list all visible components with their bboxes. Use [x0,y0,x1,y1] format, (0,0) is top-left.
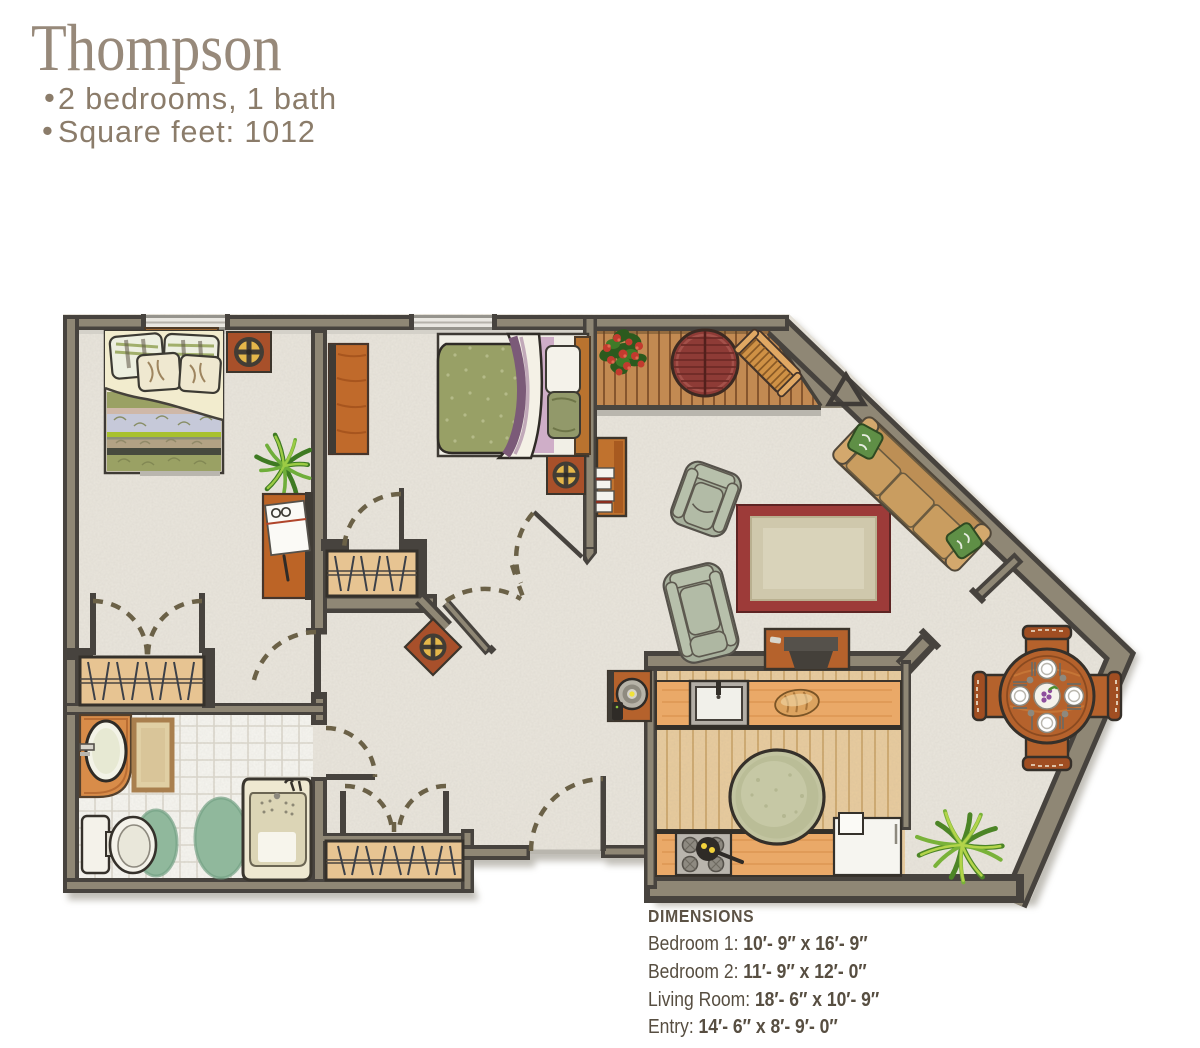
svg-text:Bedroom 1: 10′- 9″ x 16′- 9″: Bedroom 1: 10′- 9″ x 16′- 9″ [648,933,868,956]
svg-text:Square feet: 1012: Square feet: 1012 [58,115,316,149]
svg-text:Entry: 14′- 6″ x 8′- 9′- 0″: Entry: 14′- 6″ x 8′- 9′- 0″ [648,1016,838,1039]
svg-text:Thompson: Thompson [31,10,282,85]
svg-text:Bedroom 2: 11′- 9″ x 12′- 0″: Bedroom 2: 11′- 9″ x 12′- 0″ [648,961,867,984]
svg-text:2 bedrooms, 1 bath: 2 bedrooms, 1 bath [58,82,337,116]
svg-text:DIMENSIONS: DIMENSIONS [648,906,754,926]
svg-text:•: • [44,80,55,115]
svg-text:Living Room: 18′- 6″ x 10′- 9″: Living Room: 18′- 6″ x 10′- 9″ [648,989,879,1012]
svg-text:•: • [42,113,53,148]
